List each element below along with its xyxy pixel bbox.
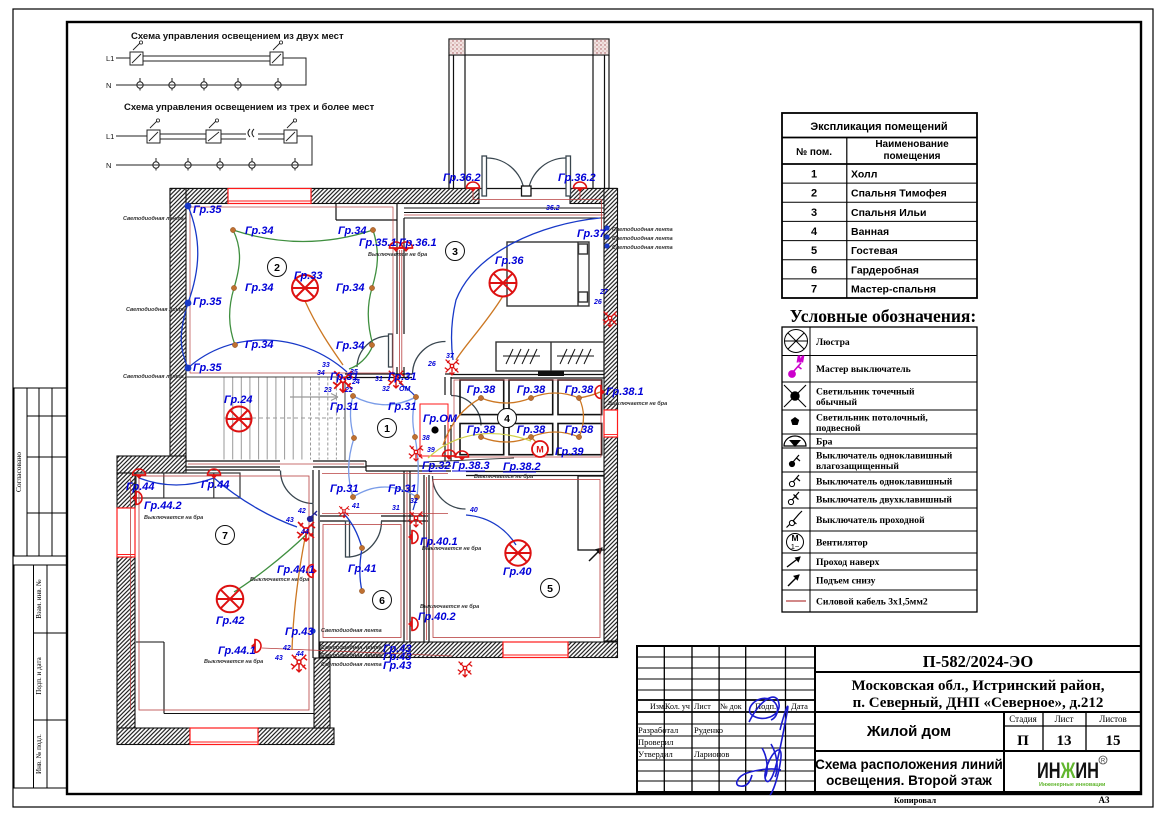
svg-text:5: 5: [547, 583, 553, 595]
svg-text:Взам. инв. №: Взам. инв. №: [35, 579, 43, 619]
svg-text:Копировал: Копировал: [894, 795, 936, 805]
svg-text:6: 6: [379, 595, 385, 607]
svg-text:Стадия: Стадия: [1009, 714, 1036, 724]
svg-text:Гр.38: Гр.38: [517, 384, 546, 396]
svg-text:Выключатель одноклавишный: Выключатель одноклавишный: [816, 451, 953, 462]
svg-text:подвесной: подвесной: [816, 423, 861, 434]
svg-text:Гр.34: Гр.34: [245, 339, 274, 351]
svg-text:Светодиодная лента: Светодиодная лента: [612, 236, 673, 242]
svg-text:Мастер-спальня: Мастер-спальня: [851, 283, 936, 295]
svg-text:32: 32: [382, 386, 390, 393]
svg-text:А3: А3: [1099, 795, 1110, 805]
svg-text:Гр.44.2: Гр.44.2: [144, 500, 182, 512]
svg-text:2: 2: [274, 262, 280, 274]
svg-text:Проход наверх: Проход наверх: [816, 557, 880, 568]
svg-text:31: 31: [375, 376, 383, 383]
svg-text:Гр.38.1: Гр.38.1: [606, 386, 644, 398]
svg-text:Гр.34: Гр.34: [336, 340, 365, 352]
svg-text:43: 43: [285, 517, 294, 524]
svg-text:Схема управления освещением из: Схема управления освещением из двух мест: [131, 31, 344, 42]
svg-text:Выключается на бра: Выключается на бра: [250, 576, 309, 583]
svg-text:П-582/2024-ЭО: П-582/2024-ЭО: [923, 652, 1034, 671]
svg-text:Выключается не бра: Выключается не бра: [368, 251, 427, 258]
svg-text:Экспликация помещений: Экспликация помещений: [810, 121, 947, 133]
svg-text:Вентилятор: Вентилятор: [816, 538, 868, 549]
svg-text:31: 31: [392, 505, 400, 512]
svg-text:Гр.38.3: Гр.38.3: [452, 460, 490, 472]
svg-text:Жилой дом: Жилой дом: [866, 723, 951, 740]
svg-text:Утвердил: Утвердил: [638, 749, 673, 759]
svg-text:Гр.36.2: Гр.36.2: [443, 172, 481, 184]
svg-text:4: 4: [504, 413, 510, 425]
svg-text:5: 5: [811, 245, 817, 257]
svg-text:Схема управления освещением из: Схема управления освещением из трех и бо…: [124, 102, 375, 113]
svg-text:1: 1: [811, 169, 817, 181]
svg-text:Выключатель одноклавишный: Выключатель одноклавишный: [816, 477, 953, 488]
svg-text:N: N: [106, 161, 111, 170]
svg-text:Светодиодная лента: Светодиодная лента: [123, 374, 184, 380]
svg-text:Гр.44: Гр.44: [201, 479, 230, 491]
svg-text:Ларионов: Ларионов: [694, 749, 729, 759]
svg-text:Выключатель проходной: Выключатель проходной: [816, 515, 925, 526]
svg-text:Лист: Лист: [1055, 714, 1074, 724]
svg-text:Согласовано: Согласовано: [14, 452, 23, 492]
svg-text:Гр.24: Гр.24: [224, 394, 253, 406]
svg-text:Выключается не бра: Выключается не бра: [608, 400, 667, 407]
svg-text:42: 42: [297, 508, 306, 515]
svg-text:43: 43: [274, 655, 283, 662]
svg-text:Гр.43: Гр.43: [285, 626, 314, 638]
svg-text:Гостевая: Гостевая: [851, 245, 898, 257]
svg-text:22: 22: [344, 387, 353, 394]
svg-text:п. Северный, ДНП «Северное», д: п. Северный, ДНП «Северное», д.212: [853, 695, 1104, 711]
svg-text:3: 3: [452, 246, 458, 258]
svg-text:Гр.39: Гр.39: [555, 446, 584, 458]
svg-text:Гр.38: Гр.38: [517, 424, 546, 436]
svg-text:44: 44: [300, 529, 309, 536]
svg-text:Дата: Дата: [791, 701, 808, 711]
svg-text:6: 6: [811, 264, 817, 276]
svg-text:Руденко: Руденко: [694, 725, 723, 735]
svg-text:Гр.35: Гр.35: [193, 204, 222, 216]
svg-text:М: М: [797, 355, 804, 364]
svg-text:Гр.31: Гр.31: [330, 371, 359, 383]
svg-text:Лист: Лист: [694, 702, 711, 711]
svg-text:L1: L1: [106, 132, 114, 141]
svg-text:Гр.35: Гр.35: [193, 362, 222, 374]
svg-text:№ док: № док: [720, 702, 742, 711]
svg-text:помещения: помещения: [884, 151, 941, 162]
svg-text:Гр.38: Гр.38: [467, 424, 496, 436]
svg-text:Светодиодная лента: Светодиодная лента: [321, 645, 382, 651]
svg-text:Бра: Бра: [816, 437, 833, 448]
svg-text:Выключается не бра: Выключается не бра: [422, 545, 481, 552]
svg-text:23: 23: [323, 387, 332, 394]
svg-text:27: 27: [599, 289, 609, 296]
svg-text:13: 13: [1057, 733, 1072, 749]
svg-text:3: 3: [811, 207, 817, 219]
svg-text:Гр.33: Гр.33: [294, 270, 323, 282]
svg-text:Выключается на бра: Выключается на бра: [144, 514, 203, 521]
svg-text:Гр.34: Гр.34: [338, 225, 367, 237]
svg-text:40: 40: [469, 507, 478, 514]
svg-text:38: 38: [422, 435, 430, 442]
svg-text:Разработал: Разработал: [638, 725, 679, 735]
svg-text:Гр.44.1: Гр.44.1: [218, 645, 256, 657]
svg-text:Гр.34: Гр.34: [245, 225, 274, 237]
svg-text:Гр.43: Гр.43: [383, 660, 412, 672]
svg-text:Гр.35.1: Гр.35.1: [359, 237, 397, 249]
svg-text:Гр.32: Гр.32: [422, 460, 451, 472]
svg-text:Подп. и дата: Подп. и дата: [35, 656, 43, 694]
svg-text:34: 34: [317, 370, 325, 377]
svg-text:Светильник точечный: Светильник точечный: [816, 387, 915, 398]
svg-text:Гр.34: Гр.34: [245, 282, 274, 294]
svg-text:Светодиодная лента: Светодиодная лента: [321, 628, 382, 634]
svg-text:Гр.38: Гр.38: [565, 424, 594, 436]
svg-text:Гр.36.2: Гр.36.2: [558, 172, 596, 184]
svg-text:Московская обл., Истринский ра: Московская обл., Истринский район,: [852, 678, 1105, 694]
svg-text:7: 7: [811, 283, 817, 295]
svg-text:Выключатель двухклавишный: Выключатель двухклавишный: [816, 495, 952, 506]
svg-text:41: 41: [351, 503, 360, 510]
svg-text:Светодиодная лента: Светодиодная лента: [321, 662, 382, 668]
svg-text:Гр.31: Гр.31: [388, 371, 417, 383]
svg-text:Гр.38: Гр.38: [467, 384, 496, 396]
svg-text:освещения. Второй этаж: освещения. Второй этаж: [826, 773, 992, 788]
svg-text:обычный: обычный: [816, 397, 858, 408]
svg-text:15: 15: [1106, 733, 1121, 749]
svg-text:Гр.44: Гр.44: [126, 481, 155, 493]
svg-text:Инженерные инновации: Инженерные инновации: [1039, 782, 1105, 788]
svg-text:Гр.41: Гр.41: [348, 563, 377, 575]
svg-text:Листов: Листов: [1099, 714, 1126, 724]
svg-text:Схема расположения линий: Схема расположения линий: [815, 757, 1003, 772]
svg-text:R: R: [1101, 759, 1106, 765]
svg-text:ИНЖИН: ИНЖИН: [1037, 758, 1099, 783]
svg-text:Светодиодная лента: Светодиодная лента: [612, 245, 673, 251]
svg-text:Мастер выключатель: Мастер выключатель: [816, 364, 911, 375]
svg-text:Гр.31: Гр.31: [330, 483, 359, 495]
svg-text:Ванная: Ванная: [851, 226, 889, 238]
svg-text:Гр.42: Гр.42: [216, 615, 245, 627]
svg-text:Проверил: Проверил: [638, 737, 674, 747]
svg-text:Гр.31: Гр.31: [388, 483, 417, 495]
svg-text:Инв. № подл.: Инв. № подл.: [35, 734, 43, 774]
svg-text:Подп.: Подп.: [755, 701, 776, 711]
svg-text:M: M: [536, 445, 544, 455]
svg-text:Светодиодная лента: Светодиодная лента: [126, 307, 187, 313]
svg-text:Подъем снизу: Подъем снизу: [816, 576, 876, 587]
svg-text:влагозащищенный: влагозащищенный: [816, 461, 899, 472]
svg-text:Гр.38.2: Гр.38.2: [503, 461, 541, 473]
svg-text:39: 39: [427, 447, 435, 454]
svg-text:Выключается на бра: Выключается на бра: [204, 658, 263, 665]
svg-text:26: 26: [427, 361, 436, 368]
svg-text:Спальня Ильи: Спальня Ильи: [851, 207, 926, 219]
svg-text:Выключается не бра: Выключается не бра: [420, 603, 479, 610]
svg-text:7: 7: [222, 530, 228, 542]
svg-text:1: 1: [384, 423, 390, 435]
svg-text:Выключается не бра: Выключается не бра: [474, 473, 533, 480]
svg-text:П: П: [1017, 733, 1029, 749]
svg-text:Силовой кабель 3х1,5мм2: Силовой кабель 3х1,5мм2: [816, 597, 928, 608]
svg-text:ОМ: ОМ: [399, 386, 410, 393]
svg-text:32: 32: [410, 498, 418, 505]
svg-text:Люстра: Люстра: [816, 337, 850, 348]
svg-text:Гр.44.1: Гр.44.1: [277, 564, 315, 576]
svg-text:Изм.: Изм.: [650, 702, 666, 711]
svg-text:Кол. уч: Кол. уч: [665, 702, 690, 711]
svg-text:Спальня Тимофея: Спальня Тимофея: [851, 188, 947, 200]
svg-text:Гр.40: Гр.40: [503, 566, 532, 578]
svg-text:Гр.40.2: Гр.40.2: [418, 611, 456, 623]
svg-text:Гр.38: Гр.38: [565, 384, 594, 396]
svg-text:42: 42: [282, 645, 291, 652]
svg-text:26: 26: [593, 299, 602, 306]
svg-text:Гр.36.1: Гр.36.1: [399, 237, 437, 249]
svg-text:4: 4: [811, 226, 818, 238]
svg-text:Светодиодная лента: Светодиодная лента: [612, 227, 673, 233]
svg-text:37: 37: [446, 353, 455, 360]
svg-text:Условные обозначения:: Условные обозначения:: [790, 306, 976, 326]
svg-text:L1: L1: [106, 54, 114, 63]
svg-text:Гр.37: Гр.37: [577, 228, 606, 240]
svg-text:Гр.ОМ: Гр.ОМ: [423, 413, 458, 425]
svg-text:N: N: [106, 81, 111, 90]
svg-text:Светодиодная лента: Светодиодная лента: [321, 653, 382, 659]
svg-text:Гр.31: Гр.31: [388, 401, 417, 413]
svg-text:Гр.36: Гр.36: [495, 255, 524, 267]
svg-text:44: 44: [295, 651, 304, 658]
svg-text:36.2: 36.2: [546, 205, 560, 212]
svg-text:№ пом.: № пом.: [796, 147, 832, 158]
svg-text:Светодиодная лента: Светодиодная лента: [123, 216, 184, 222]
svg-text:Гр.34: Гр.34: [336, 282, 365, 294]
svg-text:Гр.31: Гр.31: [330, 401, 359, 413]
svg-text:33: 33: [322, 362, 330, 369]
svg-text:1~: 1~: [791, 542, 800, 551]
svg-text:2: 2: [811, 188, 817, 200]
svg-text:Гр.35: Гр.35: [193, 296, 222, 308]
svg-text:Светильник потолочный,: Светильник потолочный,: [816, 413, 928, 424]
svg-text:Холл: Холл: [851, 169, 877, 181]
svg-text:Гардеробная: Гардеробная: [851, 264, 919, 276]
svg-text:Наименование: Наименование: [875, 139, 949, 150]
